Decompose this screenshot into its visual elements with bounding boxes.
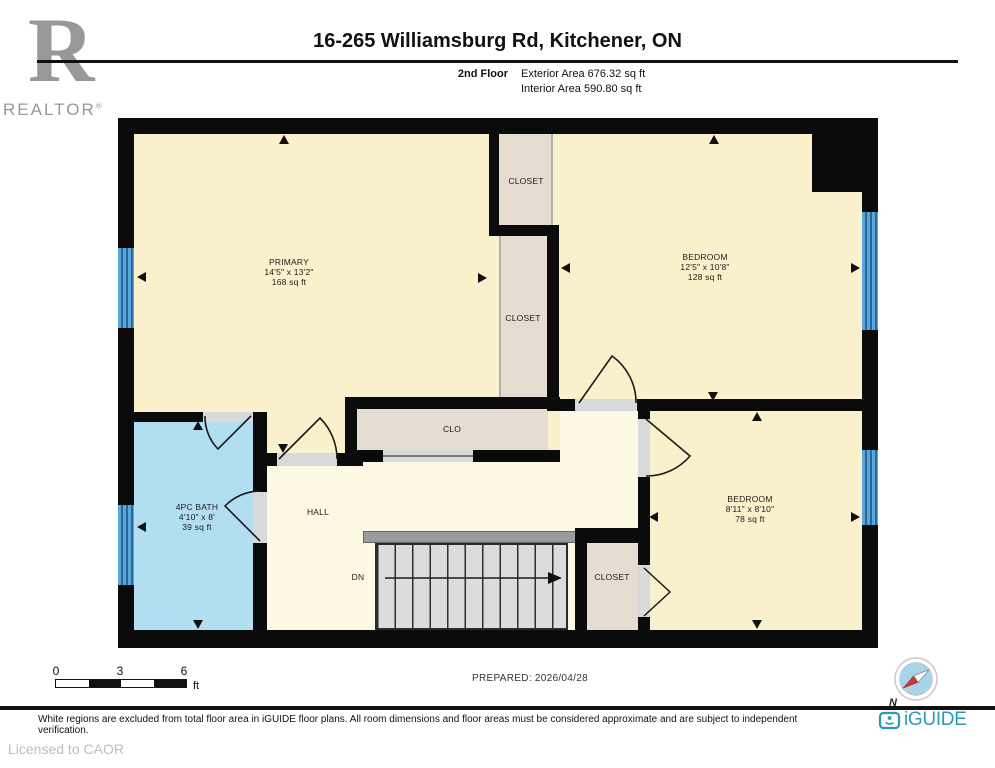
wall: [337, 453, 363, 466]
wall: [637, 399, 862, 411]
door-gap-primary: [277, 453, 337, 466]
wall-notch: [812, 134, 862, 192]
disclaimer-text: White regions are excluded from total fl…: [38, 714, 838, 736]
scale-tick-6: 6: [181, 664, 188, 678]
closet-top-door-line: [551, 134, 553, 225]
room-label-bedroom1: BEDROOM12'5" x 10'8"128 sq ft: [680, 252, 729, 282]
iguide-camera-icon: [878, 709, 901, 731]
wall: [473, 450, 560, 462]
door-gap-bath-right: [253, 492, 267, 543]
wall: [862, 118, 878, 648]
footer-divider: [0, 706, 995, 710]
clo-sliding-door-line: [383, 455, 473, 457]
room-label-primary: PRIMARY14'5" x 13'2"168 sq ft: [264, 257, 313, 287]
wall: [638, 617, 650, 630]
door-gap-bedroom2: [638, 419, 650, 477]
room-label-bedroom2: BEDROOM8'11" x 8'10"78 sq ft: [726, 494, 775, 524]
wall: [253, 412, 267, 492]
wall: [118, 118, 878, 134]
room-label-closet-mid: CLOSET: [505, 313, 540, 323]
page-title: 16-265 Williamsburg Rd, Kitchener, ON: [0, 30, 995, 53]
realtor-logo-text: REALTOR®: [3, 100, 104, 120]
interior-area: Interior Area 590.80 sq ft: [521, 83, 641, 95]
scale-bar: [55, 679, 187, 688]
window: [862, 450, 878, 525]
room-label-hall: HALL: [307, 507, 329, 517]
door-gap-bath-top: [203, 412, 253, 422]
wall: [345, 397, 560, 409]
room-label-closet-stairs: CLOSET: [594, 572, 629, 582]
wall: [547, 225, 559, 411]
prepared-date: PREPARED: 2026/04/28: [440, 673, 620, 684]
iguide-logo: iGUIDE: [878, 709, 967, 731]
staircase: [375, 543, 568, 630]
floor-closet-stairs: [587, 543, 638, 630]
wall: [253, 543, 267, 630]
floor-hall-arm: [560, 411, 640, 466]
wall: [575, 532, 587, 630]
room-label-closet-top: CLOSET: [508, 176, 543, 186]
title-divider: [37, 60, 958, 63]
wall: [267, 453, 277, 466]
stairs-dn-label: DN: [352, 572, 365, 582]
floor-label: 2nd Floor: [385, 68, 508, 80]
iguide-logo-text: iGUIDE: [904, 709, 967, 731]
wall: [638, 411, 650, 419]
scale-unit: ft: [193, 680, 199, 692]
window: [862, 212, 878, 330]
exterior-area: Exterior Area 676.32 sq ft: [521, 68, 645, 80]
wall: [118, 630, 878, 648]
closet-mid-door-line: [499, 236, 501, 397]
wall: [489, 134, 499, 236]
room-label-bath: 4PC BATH4'10" x 8'39 sq ft: [176, 502, 219, 532]
door-gap-bedroom1: [575, 399, 637, 411]
wall: [134, 412, 203, 422]
window: [118, 248, 134, 328]
floor-plan-page: R REALTOR® 16-265 Williamsburg Rd, Kitch…: [0, 0, 995, 768]
wall: [638, 477, 650, 565]
wall: [559, 399, 575, 411]
scale-tick-0: 0: [53, 664, 60, 678]
window: [118, 505, 134, 585]
door-gap-closet-stairs: [638, 565, 650, 617]
room-label-clo: CLO: [443, 424, 461, 434]
licensed-text: Licensed to CAOR: [8, 741, 124, 757]
stair-railing: [363, 531, 578, 543]
scale-tick-3: 3: [117, 664, 124, 678]
